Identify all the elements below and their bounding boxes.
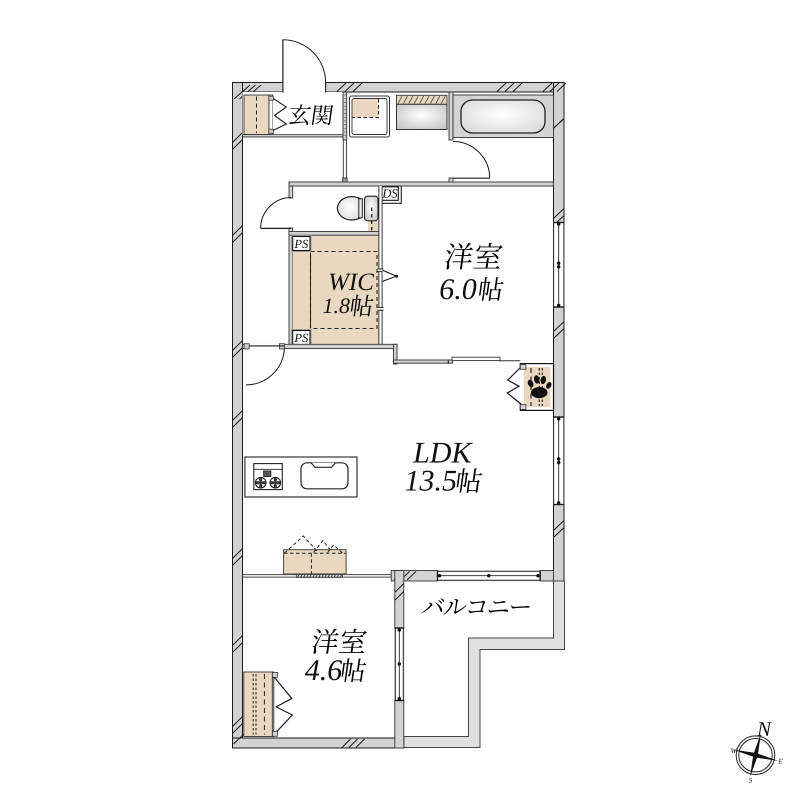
svg-text:WIC: WIC	[328, 269, 374, 296]
svg-text:PS: PS	[293, 331, 309, 345]
svg-text:13.5: 13.5	[405, 465, 458, 498]
svg-text:PS: PS	[293, 237, 309, 251]
svg-text:N: N	[756, 717, 772, 741]
svg-text:DS: DS	[381, 186, 398, 200]
svg-text:6.0: 6.0	[439, 273, 477, 306]
svg-text:1.8: 1.8	[323, 293, 351, 318]
svg-text:E: E	[777, 757, 783, 765]
svg-text:S: S	[749, 776, 753, 784]
svg-text:4.6: 4.6	[305, 654, 343, 687]
